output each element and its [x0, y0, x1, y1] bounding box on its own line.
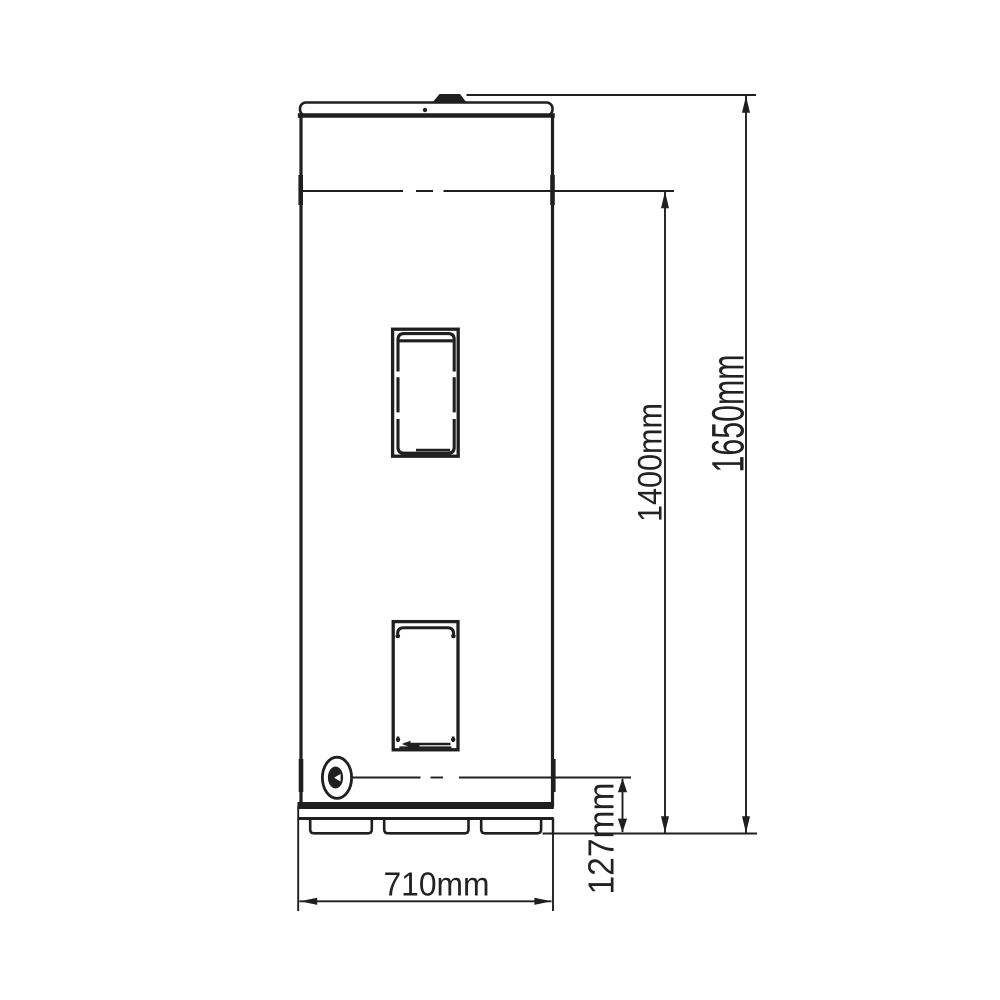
svg-text:1650mm: 1650mm: [703, 355, 754, 473]
svg-text:127mm: 127mm: [581, 783, 622, 895]
svg-text:710mm: 710mm: [384, 866, 490, 903]
svg-text:1400mm: 1400mm: [632, 403, 670, 522]
